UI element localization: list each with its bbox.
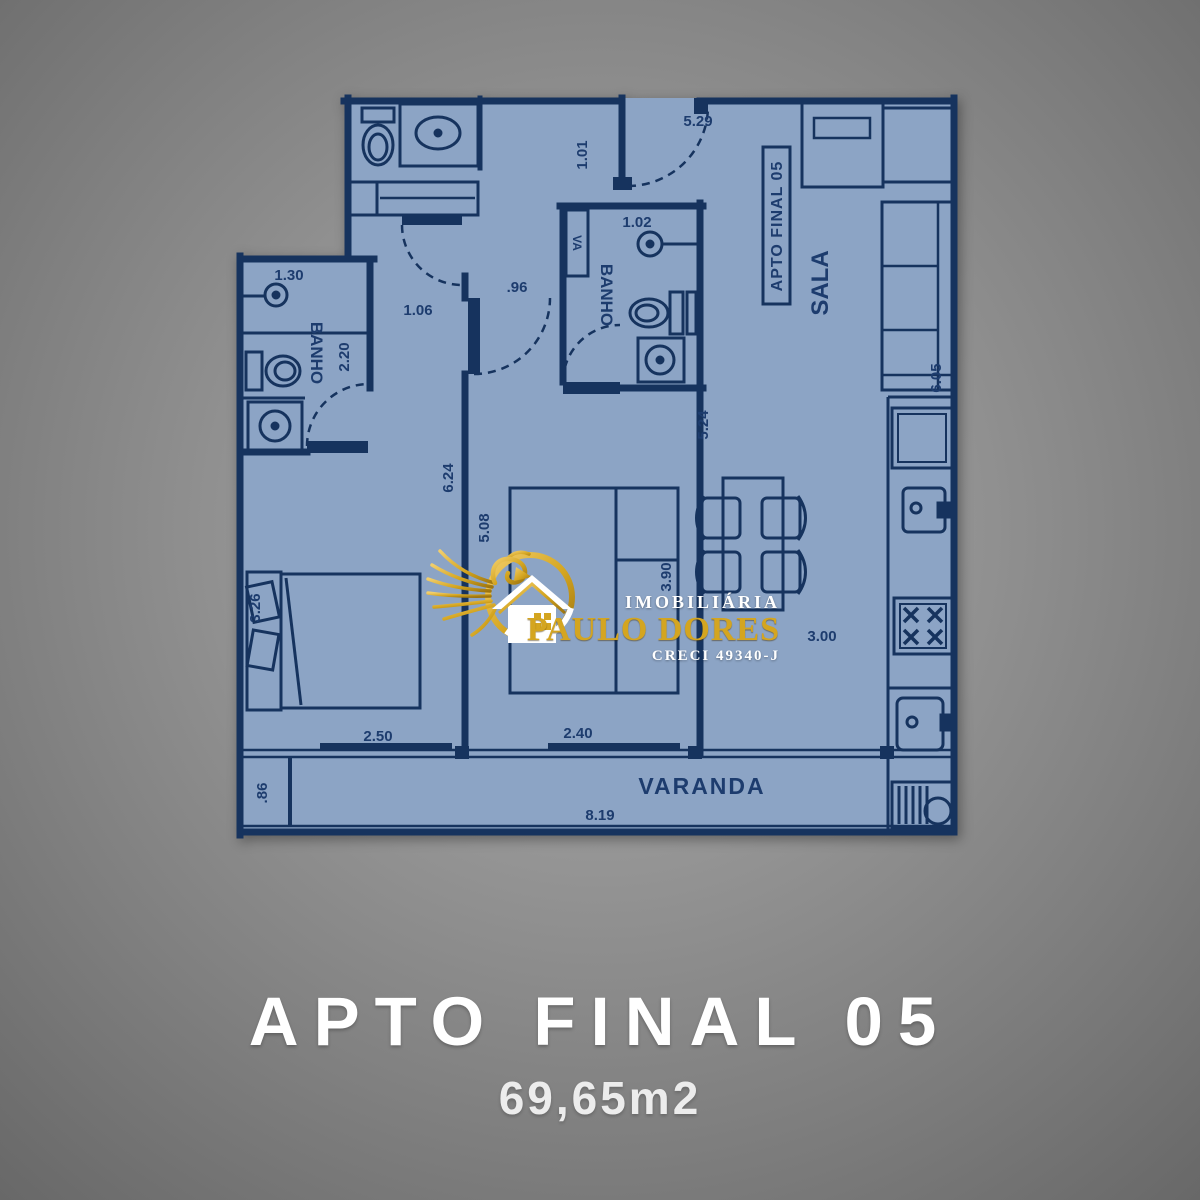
dim-kitchen-width: 3.00 [807,628,836,645]
brand-creci-label: CRECI 49340-J [520,648,780,665]
dim-hall: 1.06 [403,302,432,319]
dim-shower-suite: 1.30 [274,267,303,284]
room-label-sala: SALA [807,250,834,315]
dim-bedroom1-width: 2.50 [363,728,392,745]
unit-label: APTO FINAL 05 [769,161,786,292]
bath-social-door-leaf [563,382,620,394]
bedroom-door-leaf [468,298,480,374]
dim-living-depth: 5.24 [695,410,712,440]
room-label-shaft: VA [570,235,584,251]
room-label-varanda: VARANDA [638,773,765,799]
dim-living-width: 3.90 [658,562,675,591]
unit-title: APTO FINAL 05 [0,982,1200,1061]
room-label-banho-social: BANHO [597,264,616,326]
dim-entry-width: 5.29 [683,113,712,130]
dim-sala-depth: 6.05 [928,363,945,392]
dim-bedroom1-side: 3.26 [247,593,264,622]
brand-type-label: IMOBILIÁRIA [520,592,780,613]
unit-area: 69,65m2 [0,1071,1200,1125]
dim-shower-social: 1.02 [622,214,651,231]
brand-watermark: IMOBILIÁRIA PAULO DORES CRECI 49340-J [520,592,780,665]
dim-bedroom2-width: 2.40 [563,725,592,742]
dim-entry-side: 1.01 [574,140,591,169]
bath-suite-door-leaf [307,441,368,453]
dim-varanda-length: 8.19 [585,807,614,824]
room-label-banho-suite: BANHO [307,322,326,384]
dim-varanda-side: .86 [254,783,271,804]
dim-passage: .96 [507,279,528,296]
flyer-canvas: 5.29 1.01 1.02 .96 1.06 1.30 2.20 6.24 5… [0,0,1200,1200]
entrance-hinge [613,177,632,190]
dim-bedroom1-depth: 6.24 [440,463,457,493]
brand-name-label: PAULO DORES [520,613,780,648]
title-block: APTO FINAL 05 69,65m2 [0,982,1200,1125]
dim-banho-suite-depth: 2.20 [336,342,353,371]
